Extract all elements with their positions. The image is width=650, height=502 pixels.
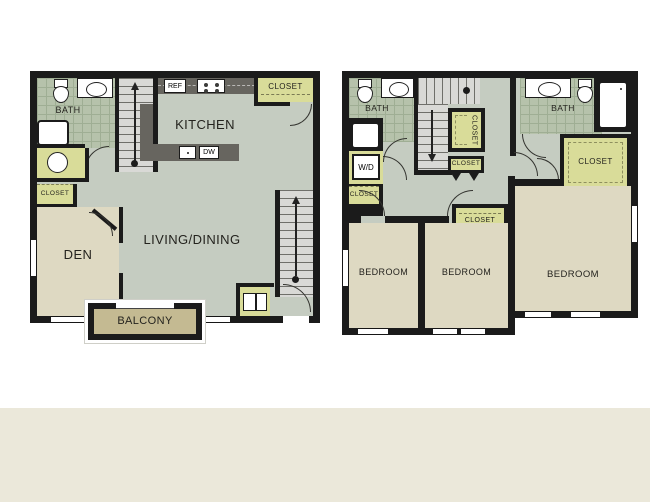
wall bbox=[254, 102, 290, 106]
stairs-start-dot bbox=[292, 276, 299, 283]
stairs-arrow-line bbox=[134, 88, 136, 164]
window bbox=[461, 328, 485, 335]
toilet-icon bbox=[577, 79, 593, 103]
stairs-down-arrow-icon bbox=[428, 154, 436, 162]
stairs-start-dot bbox=[463, 87, 470, 94]
closet-label: CLOSET bbox=[258, 83, 313, 91]
sink-basin bbox=[538, 82, 561, 97]
sink-icon bbox=[77, 78, 113, 98]
tub-drain bbox=[620, 88, 622, 90]
sink-icon bbox=[525, 78, 571, 98]
wall bbox=[349, 216, 361, 223]
balcony-label: BALCONY bbox=[117, 316, 172, 328]
double-door-icon bbox=[243, 293, 267, 311]
closet-label: CLOSET bbox=[470, 114, 477, 146]
closet-hall: CLOSET bbox=[448, 156, 484, 173]
closet-stairs: CLOSET bbox=[448, 108, 485, 152]
sink-basin bbox=[86, 82, 107, 97]
window bbox=[200, 316, 230, 323]
kitchen-label: KITCHEN bbox=[165, 118, 245, 132]
window bbox=[51, 316, 85, 323]
closet-kitchen: CLOSET bbox=[258, 78, 313, 102]
den-label: DEN bbox=[37, 248, 119, 262]
wall bbox=[85, 148, 89, 182]
window bbox=[433, 328, 457, 335]
closet-shelf-dashed bbox=[261, 94, 310, 95]
window bbox=[631, 206, 638, 242]
wall bbox=[414, 170, 452, 175]
closet-label: CLOSET bbox=[37, 191, 73, 198]
window bbox=[571, 311, 600, 318]
kitchen-sink-icon bbox=[179, 146, 196, 159]
bedroom-3 bbox=[515, 186, 631, 311]
wall bbox=[510, 78, 516, 156]
closet-shelf-dashed bbox=[455, 115, 467, 145]
sink-basin bbox=[389, 82, 409, 97]
toilet-icon bbox=[357, 79, 373, 103]
wall bbox=[37, 178, 85, 182]
door-arc bbox=[514, 152, 538, 176]
balcony-door-opening bbox=[116, 303, 174, 309]
shower-icon bbox=[351, 122, 380, 149]
sink-icon bbox=[381, 78, 414, 98]
sink-drain bbox=[187, 152, 189, 154]
floor-plan-sheet: BATH REF CLOSET CLO bbox=[0, 0, 650, 502]
stair-landing bbox=[418, 78, 480, 104]
dw-label: DW bbox=[203, 149, 215, 156]
stairs-start-dot bbox=[131, 160, 138, 167]
window bbox=[342, 250, 349, 286]
window bbox=[525, 311, 551, 318]
bedroom-label: BEDROOM bbox=[515, 270, 631, 280]
basin-icon bbox=[47, 152, 68, 173]
door-arc bbox=[447, 190, 473, 216]
wd-label: W/D bbox=[358, 163, 374, 172]
exterior-mask bbox=[515, 318, 638, 342]
stairs-arrow-line bbox=[431, 110, 433, 154]
bathtub-icon bbox=[598, 81, 628, 129]
refrigerator: REF bbox=[164, 79, 186, 93]
bedroom-label: BEDROOM bbox=[425, 268, 508, 277]
window bbox=[30, 240, 37, 276]
closet-den: CLOSET bbox=[37, 184, 73, 204]
stove-icon bbox=[197, 79, 225, 93]
bifold-door-mark bbox=[451, 173, 461, 181]
entry-threshold bbox=[283, 316, 309, 323]
living-dining-label: LIVING/DINING bbox=[132, 233, 252, 247]
stairs-arrow-line bbox=[295, 202, 297, 276]
footer: THE AVERY TOWNHOME APARTMENTS TOWNHOME 3… bbox=[0, 408, 650, 502]
floor-plan-second: BATH W/D CLOSET CLOSET CLOSET bbox=[342, 71, 638, 335]
wall bbox=[119, 207, 123, 243]
toilet-icon bbox=[53, 79, 69, 103]
walk-in-closet: CLOSET bbox=[560, 134, 631, 191]
window bbox=[358, 328, 388, 335]
wall bbox=[73, 184, 77, 204]
wall bbox=[385, 216, 449, 223]
wall bbox=[418, 223, 425, 328]
bifold-door-mark bbox=[469, 173, 479, 181]
washer-dryer: W/D bbox=[352, 154, 380, 180]
door-arc bbox=[537, 158, 559, 180]
dishwasher: DW bbox=[199, 146, 219, 159]
floor-plan-first: BATH REF CLOSET CLO bbox=[30, 71, 320, 323]
closet-label: CLOSET bbox=[451, 161, 481, 168]
wall bbox=[508, 176, 515, 328]
wall bbox=[515, 179, 560, 186]
closet-label: CLOSET bbox=[564, 158, 627, 166]
ref-label: REF bbox=[168, 83, 182, 90]
bedroom-label: BEDROOM bbox=[349, 268, 418, 277]
bath-label: BATH bbox=[533, 104, 593, 113]
bath-label: BATH bbox=[349, 104, 405, 113]
bathtub-icon bbox=[37, 120, 69, 146]
balcony: BALCONY bbox=[88, 303, 202, 340]
door-arc bbox=[290, 104, 312, 126]
bath-label: BATH bbox=[37, 106, 99, 115]
